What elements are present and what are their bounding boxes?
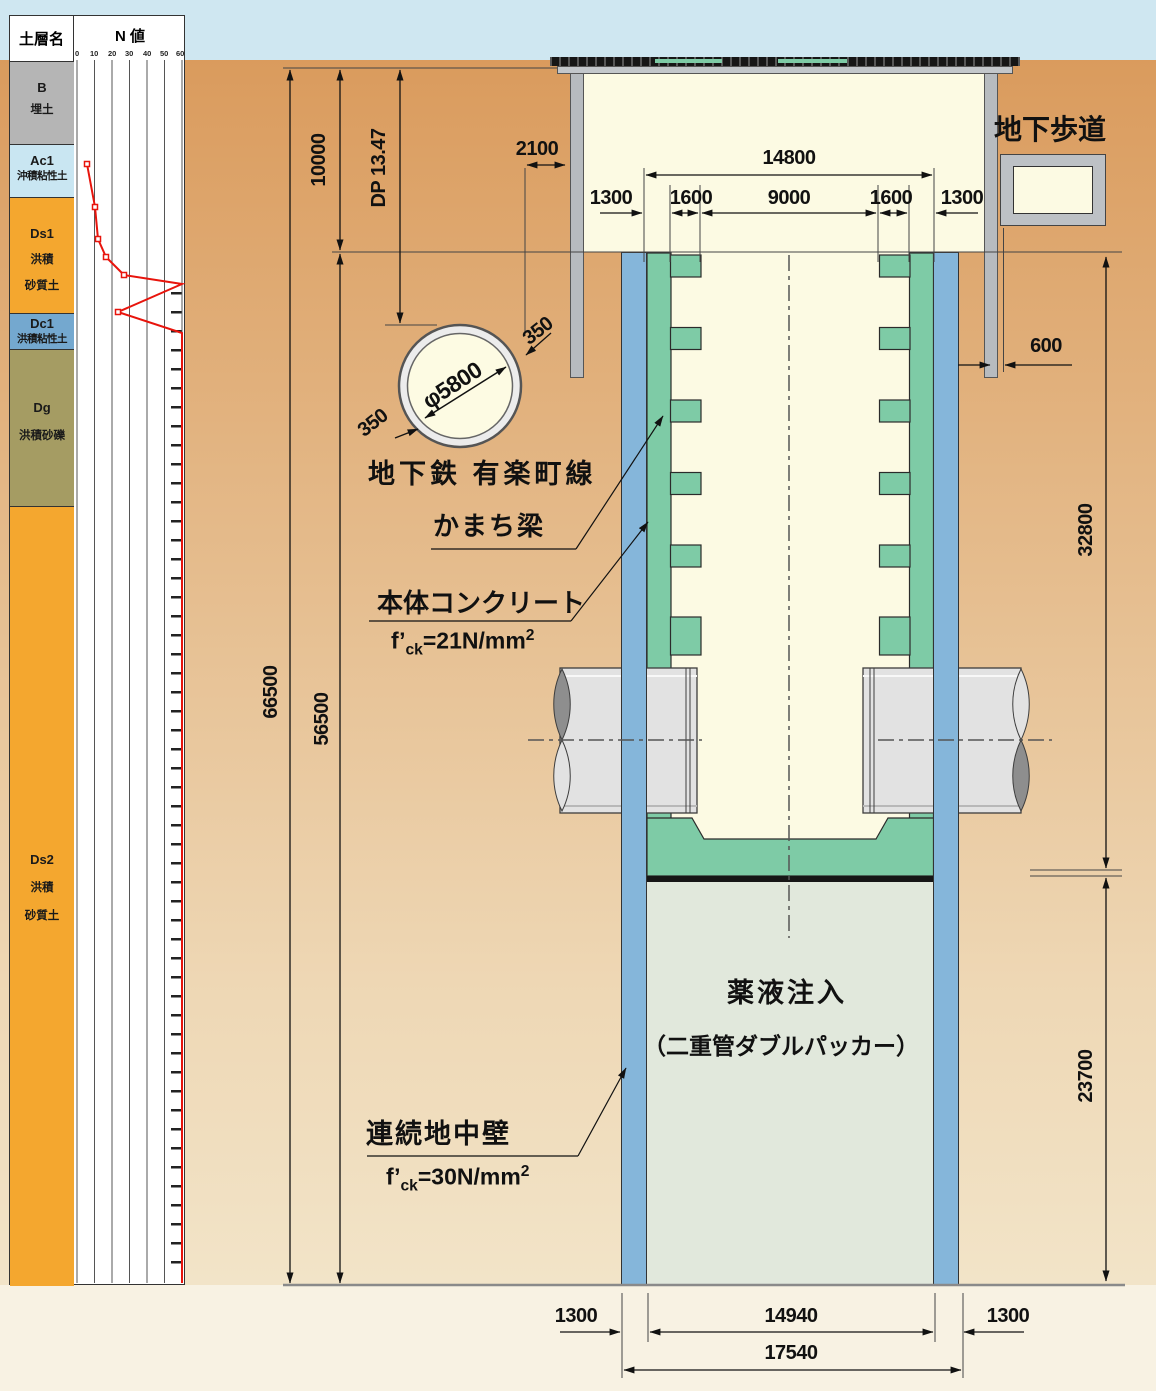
label-subway-line: 地下鉄 有楽町線	[368, 459, 597, 490]
label-spec-21: f’ck=21N/mm2	[391, 627, 534, 659]
layer-Ds2: Ds2 洪積 砂質土	[10, 506, 74, 1286]
layer-B-name: 埋土	[10, 101, 74, 117]
dim-1600-right: 1600	[861, 187, 921, 209]
layer-B-code: B	[10, 80, 74, 95]
dim-1300-bottom-right: 1300	[978, 1305, 1038, 1327]
spec21-rest: =21N/mm	[423, 628, 526, 654]
deck-green-segment-2	[778, 59, 847, 64]
borehole-log: 土層名 N 値 0 10 20 30 40 50 60 B 埋土 Ac1 沖積粘…	[9, 15, 185, 1285]
label-spec-30: f’ck=30N/mm2	[386, 1163, 529, 1195]
layer-Dg-name: 洪積砂礫	[10, 427, 74, 443]
n-axis-ticks: 0 10 20 30 40 50 60	[10, 49, 186, 61]
dim-32800: 32800	[1075, 480, 1097, 580]
dim-1600-left: 1600	[661, 187, 721, 209]
diaphragm-wall-right	[933, 252, 959, 1285]
layer-Ds1-code: Ds1	[10, 226, 74, 241]
dim-1300-right: 1300	[932, 187, 992, 209]
dim-9000: 9000	[749, 187, 829, 209]
deck-green-segment-1	[655, 59, 722, 64]
shaft-interior	[647, 252, 933, 882]
dim-14940: 14940	[746, 1305, 836, 1327]
deck-slab	[557, 66, 1013, 74]
walkway-box-inner	[1013, 166, 1093, 214]
n-value-header: N 値	[74, 16, 186, 46]
dim-23700: 23700	[1075, 1026, 1097, 1126]
below-ground-band	[0, 1285, 1156, 1391]
tick-20: 20	[108, 49, 116, 58]
dim-17540: 17540	[746, 1342, 836, 1364]
layer-Dc1-code: Dc1	[10, 316, 74, 331]
label-grout-injection: 薬液注入	[727, 978, 847, 1009]
layer-Dc1-name: 洪積粘性土	[10, 331, 74, 346]
layer-Ds2-name1: 洪積	[10, 879, 74, 895]
engineering-cross-section: { "soil_column": { "header_layer": "土層名"…	[0, 0, 1156, 1391]
layer-Dg-code: Dg	[10, 400, 74, 415]
layer-B: B 埋土	[10, 61, 74, 144]
spec21-sub: ck	[405, 641, 422, 658]
tick-50: 50	[160, 49, 168, 58]
diaphragm-wall-left	[621, 252, 647, 1285]
label-body-concrete: 本体コンクリート	[377, 589, 585, 619]
layer-Ds1-name1: 洪積	[10, 251, 74, 267]
layer-Ac1: Ac1 沖積粘性土	[10, 144, 74, 197]
label-diaphragm-wall: 連続地中壁	[366, 1119, 511, 1150]
label-kamachi-beam: かまち梁	[433, 512, 545, 542]
dim-600: 600	[1016, 335, 1076, 357]
temporary-pile-left	[570, 73, 584, 378]
dim-1300-bottom-left: 1300	[546, 1305, 606, 1327]
layer-Ac1-name: 沖積粘性土	[10, 168, 74, 183]
spec21-sup: 2	[526, 627, 535, 644]
spec30-sub: ck	[400, 1177, 417, 1194]
dim-dp1347: DP 13.47	[368, 118, 390, 218]
tick-30: 30	[125, 49, 133, 58]
dim-56500: 56500	[311, 669, 333, 769]
layer-Ds2-name2: 砂質土	[10, 907, 74, 923]
layer-Dg: Dg 洪積砂礫	[10, 349, 74, 506]
tick-60: 60	[176, 49, 184, 58]
tick-10: 10	[90, 49, 98, 58]
grout-zone	[647, 882, 933, 1285]
dim-10000: 10000	[308, 110, 330, 210]
dim-2100: 2100	[502, 138, 572, 160]
dim-66500: 66500	[260, 642, 282, 742]
spec30-sup: 2	[521, 1163, 530, 1180]
dim-1300-left: 1300	[581, 187, 641, 209]
layer-Ac1-code: Ac1	[10, 153, 74, 168]
layer-Ds1: Ds1 洪積 砂質土	[10, 197, 74, 313]
layer-Dc1: Dc1 洪積粘性土	[10, 313, 74, 349]
spec30-rest: =30N/mm	[418, 1164, 521, 1190]
spec30-f: f’	[386, 1164, 400, 1190]
tick-40: 40	[143, 49, 151, 58]
layer-Ds2-code: Ds2	[10, 852, 74, 867]
dim-14800: 14800	[739, 147, 839, 169]
spec21-f: f’	[391, 628, 405, 654]
tick-0: 0	[75, 49, 79, 58]
layer-Ds1-name2: 砂質土	[10, 277, 74, 293]
label-walkway: 地下歩道	[994, 114, 1106, 146]
n-over60-ticks	[171, 292, 182, 1280]
label-grout-method: （二重管ダブルパッカー）	[643, 1033, 919, 1059]
